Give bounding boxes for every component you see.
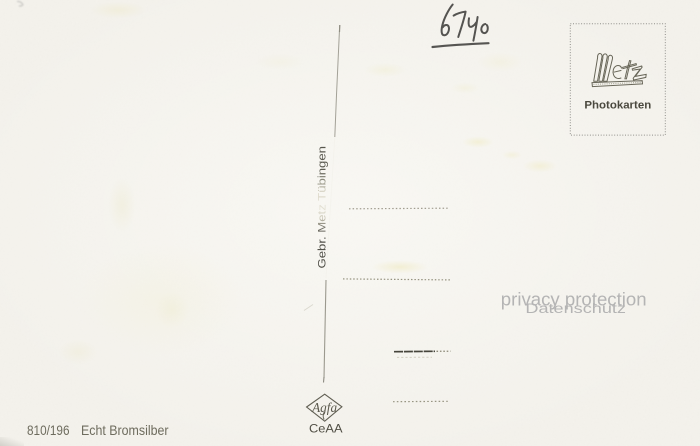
svg-text:Echt Bromsilber: Echt Bromsilber bbox=[81, 422, 169, 438]
svg-text:Gebr. Metz Tübingen: Gebr. Metz Tübingen bbox=[316, 146, 328, 269]
svg-text:Datenschutz: Datenschutz bbox=[525, 301, 626, 316]
svg-text:Photokarten: Photokarten bbox=[584, 100, 651, 112]
svg-text:810/196: 810/196 bbox=[27, 422, 70, 438]
svg-text:CeAA: CeAA bbox=[309, 422, 343, 436]
